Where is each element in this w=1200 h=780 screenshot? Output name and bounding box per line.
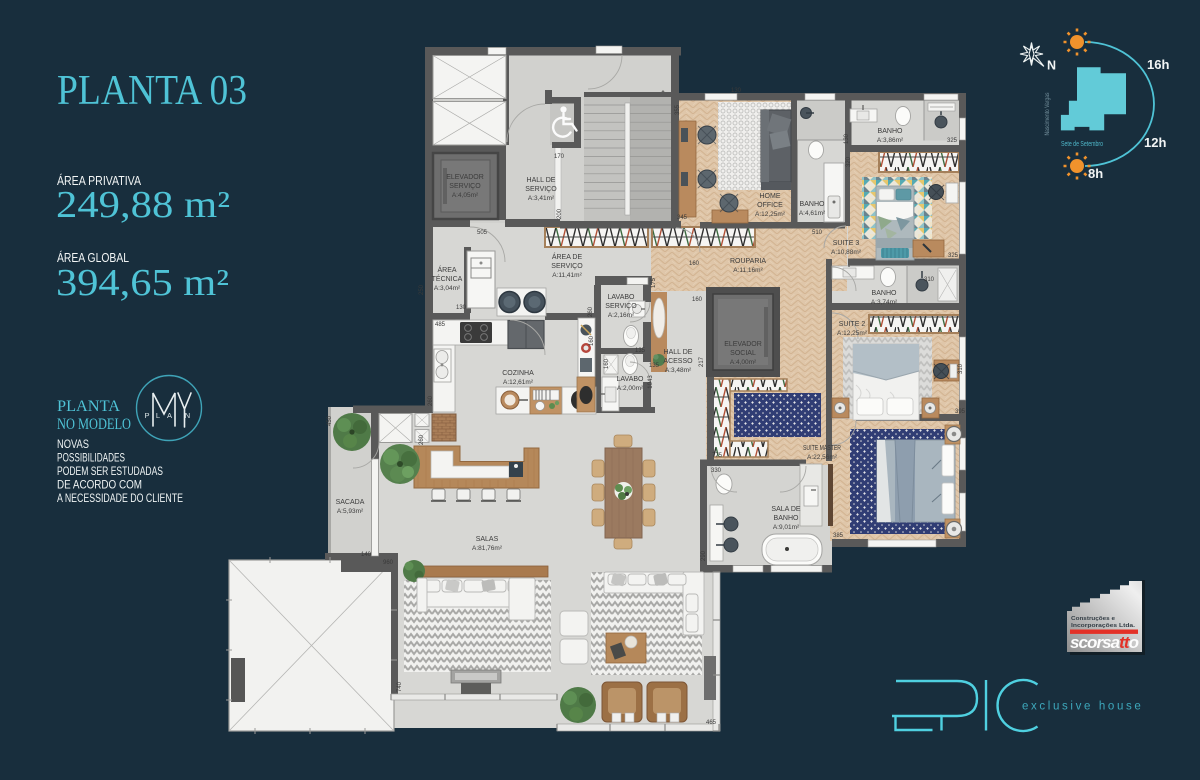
- svg-text:SALAS: SALAS: [476, 536, 499, 543]
- svg-text:170: 170: [554, 154, 565, 160]
- svg-text:1043: 1043: [648, 375, 654, 389]
- svg-text:COZINHA: COZINHA: [502, 370, 534, 377]
- svg-text:ÁREA DE: ÁREA DE: [552, 252, 583, 261]
- svg-text:310: 310: [958, 363, 964, 374]
- svg-text:BANHO: BANHO: [774, 515, 799, 522]
- svg-text:A:9,01m²: A:9,01m²: [773, 524, 800, 531]
- svg-text:BANHO: BANHO: [878, 128, 903, 135]
- svg-text:130: 130: [731, 88, 742, 94]
- svg-text:260: 260: [419, 434, 425, 445]
- svg-text:290: 290: [701, 550, 707, 561]
- svg-text:A:3,86m²: A:3,86m²: [877, 137, 904, 144]
- svg-text:SUITE 3: SUITE 3: [833, 240, 860, 247]
- svg-text:330: 330: [711, 468, 722, 474]
- svg-text:HALL DE: HALL DE: [664, 349, 693, 356]
- svg-text:320: 320: [846, 156, 852, 167]
- svg-text:A:2,00m²: A:2,00m²: [617, 385, 644, 392]
- svg-text:PODEM SER ESTUDADAS: PODEM SER ESTUDADAS: [57, 464, 163, 478]
- svg-text:A:4,00m²: A:4,00m²: [730, 359, 757, 366]
- svg-text:A:11,41m²: A:11,41m²: [552, 272, 582, 279]
- svg-text:A:3,41m²: A:3,41m²: [528, 195, 555, 202]
- svg-text:A:12,25m²: A:12,25m²: [755, 211, 786, 218]
- svg-text:A:10,88m²: A:10,88m²: [831, 249, 862, 256]
- svg-text:394,65 m²: 394,65 m²: [56, 262, 229, 304]
- svg-text:325: 325: [948, 253, 959, 259]
- svg-text:740: 740: [397, 681, 403, 692]
- svg-text:HALL DE: HALL DE: [527, 177, 556, 184]
- svg-text:P: P: [144, 411, 149, 420]
- svg-text:12h: 12h: [1144, 135, 1166, 150]
- svg-text:395: 395: [955, 409, 966, 415]
- svg-text:8h: 8h: [1088, 166, 1103, 181]
- svg-text:345: 345: [677, 215, 688, 221]
- svg-text:A:5,93m²: A:5,93m²: [337, 508, 364, 515]
- svg-text:L: L: [156, 411, 160, 420]
- svg-text:A:81,76m²: A:81,76m²: [472, 545, 503, 552]
- svg-text:OFFICE: OFFICE: [757, 202, 783, 209]
- svg-text:485: 485: [435, 322, 446, 328]
- svg-text:SOCIAL: SOCIAL: [730, 350, 756, 357]
- svg-text:A:12,25m²: A:12,25m²: [837, 330, 868, 337]
- svg-text:Incorporações Ltda.: Incorporações Ltda.: [1071, 623, 1135, 629]
- svg-text:LAVABO: LAVABO: [608, 294, 636, 301]
- svg-text:PLANTA 03: PLANTA 03: [57, 68, 247, 114]
- svg-text:160: 160: [589, 335, 595, 346]
- svg-text:PLANTA: PLANTA: [57, 398, 120, 415]
- svg-text:SERVIÇO: SERVIÇO: [605, 303, 637, 310]
- svg-text:SERVIÇO: SERVIÇO: [551, 263, 583, 270]
- svg-text:160: 160: [692, 297, 703, 303]
- svg-text:160: 160: [689, 261, 700, 267]
- svg-text:A:4,05m²: A:4,05m²: [452, 192, 479, 199]
- svg-text:HOME: HOME: [760, 193, 781, 200]
- svg-text:ACESSO: ACESSO: [663, 358, 693, 365]
- svg-text:SUITE 2: SUITE 2: [839, 321, 866, 328]
- svg-text:A NECESSIDADE DO CLIENTE: A NECESSIDADE DO CLIENTE: [57, 491, 183, 505]
- svg-text:775: 775: [712, 453, 723, 459]
- svg-text:960: 960: [383, 560, 394, 566]
- svg-text:140: 140: [361, 552, 372, 558]
- svg-text:260: 260: [428, 395, 434, 406]
- svg-text:TÉCNICA: TÉCNICA: [432, 274, 463, 283]
- svg-text:130: 130: [456, 305, 467, 311]
- svg-text:16h: 16h: [1147, 57, 1169, 72]
- svg-text:exclusive house: exclusive house: [1022, 701, 1144, 713]
- svg-text:135: 135: [635, 348, 646, 354]
- svg-text:POSSIBILIDADES: POSSIBILIDADES: [57, 451, 125, 465]
- svg-text:N: N: [1047, 59, 1056, 73]
- svg-text:A: A: [167, 411, 172, 420]
- svg-text:385: 385: [833, 533, 844, 539]
- svg-text:A:4,61m²: A:4,61m²: [799, 210, 826, 217]
- svg-text:250: 250: [419, 284, 425, 295]
- svg-text:NOVAS: NOVAS: [57, 437, 89, 451]
- svg-text:A:12,61m²: A:12,61m²: [503, 379, 534, 386]
- svg-text:260: 260: [588, 306, 594, 317]
- svg-text:LAVABO: LAVABO: [617, 376, 645, 383]
- svg-text:Sete de Setembro: Sete de Setembro: [1061, 139, 1103, 148]
- svg-text:NO MODELO: NO MODELO: [57, 416, 131, 433]
- svg-text:SUITE MASTER: SUITE MASTER: [803, 445, 841, 452]
- svg-text:355: 355: [675, 104, 681, 115]
- svg-text:A:11,16m²: A:11,16m²: [733, 267, 763, 274]
- svg-text:A:3,74m²: A:3,74m²: [871, 299, 898, 306]
- svg-text:ÁREA: ÁREA: [437, 265, 456, 274]
- svg-text:ROUPARIA: ROUPARIA: [730, 258, 766, 265]
- svg-text:N: N: [185, 411, 190, 420]
- svg-text:ELEVADOR: ELEVADOR: [446, 174, 484, 181]
- svg-text:505: 505: [477, 230, 488, 236]
- svg-text:SERVIÇO: SERVIÇO: [449, 183, 481, 190]
- svg-text:160: 160: [604, 358, 610, 369]
- svg-text:217: 217: [699, 356, 705, 367]
- svg-text:325: 325: [947, 138, 958, 144]
- svg-text:310: 310: [924, 277, 935, 283]
- svg-text:Construções e: Construções e: [1071, 616, 1116, 622]
- svg-text:SACADA: SACADA: [336, 499, 365, 506]
- svg-text:A:3,04m²: A:3,04m²: [434, 285, 461, 292]
- svg-text:450: 450: [327, 415, 333, 426]
- svg-text:200: 200: [557, 208, 563, 219]
- svg-text:SERVIÇO: SERVIÇO: [525, 186, 557, 193]
- svg-text:SALA DE: SALA DE: [771, 506, 801, 513]
- svg-text:130: 130: [844, 133, 850, 144]
- svg-text:510: 510: [812, 230, 823, 236]
- svg-text:175: 175: [651, 277, 657, 288]
- svg-text:BANHO: BANHO: [800, 201, 825, 208]
- svg-text:ELEVADOR: ELEVADOR: [724, 341, 762, 348]
- svg-text:135: 135: [649, 363, 660, 369]
- svg-text:A:22,56m²: A:22,56m²: [807, 454, 838, 461]
- svg-text:Nascimento Vargas: Nascimento Vargas: [1044, 93, 1051, 136]
- svg-text:scorsatto: scorsatto: [1070, 633, 1139, 652]
- svg-text:DE ACORDO COM: DE ACORDO COM: [57, 478, 142, 492]
- svg-text:A:3,48m²: A:3,48m²: [665, 367, 692, 374]
- svg-text:465: 465: [706, 720, 717, 726]
- svg-text:249,88 m²: 249,88 m²: [56, 184, 230, 226]
- svg-text:A:2,16m²: A:2,16m²: [608, 312, 635, 319]
- svg-text:BANHO: BANHO: [872, 290, 897, 297]
